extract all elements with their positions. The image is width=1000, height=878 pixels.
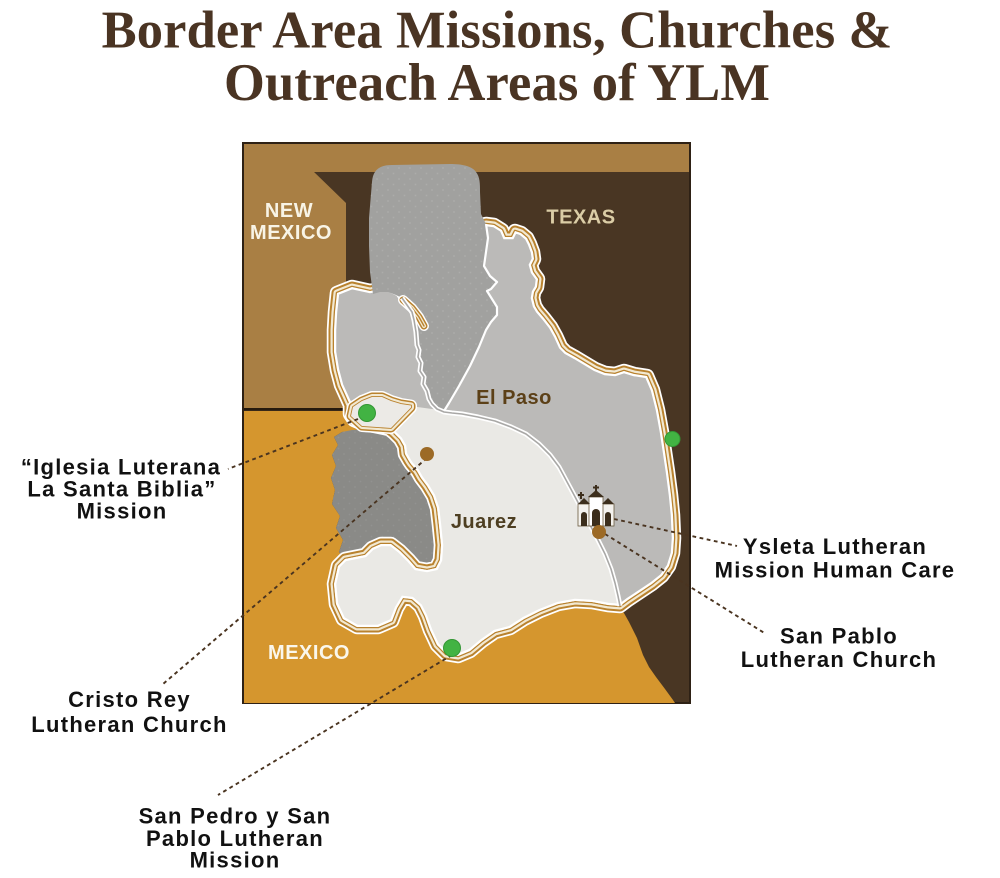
svg-text:Lutheran Church: Lutheran Church <box>31 712 227 737</box>
svg-text:Border Area Missions, Churches: Border Area Missions, Churches & <box>102 2 893 60</box>
svg-text:MEXICO: MEXICO <box>268 642 350 664</box>
svg-text:San Pablo: San Pablo <box>780 624 898 649</box>
svg-text:San Pedro y San: San Pedro y San <box>139 804 332 829</box>
svg-text:TEXAS: TEXAS <box>546 207 615 229</box>
svg-text:Cristo Rey: Cristo Rey <box>68 687 191 712</box>
svg-text:Mission: Mission <box>190 848 281 873</box>
svg-text:El Paso: El Paso <box>476 387 552 409</box>
svg-text:Mission: Mission <box>77 499 168 524</box>
svg-text:Ysleta Lutheran: Ysleta Lutheran <box>743 534 927 559</box>
svg-text:MEXICO: MEXICO <box>250 222 332 244</box>
svg-text:Juarez: Juarez <box>451 511 517 533</box>
svg-text:Outreach Areas of YLM: Outreach Areas of YLM <box>224 54 770 112</box>
svg-text:NEW: NEW <box>265 200 313 222</box>
svg-text:Mission Human Care: Mission Human Care <box>715 558 956 583</box>
svg-text:Lutheran Church: Lutheran Church <box>741 647 937 672</box>
